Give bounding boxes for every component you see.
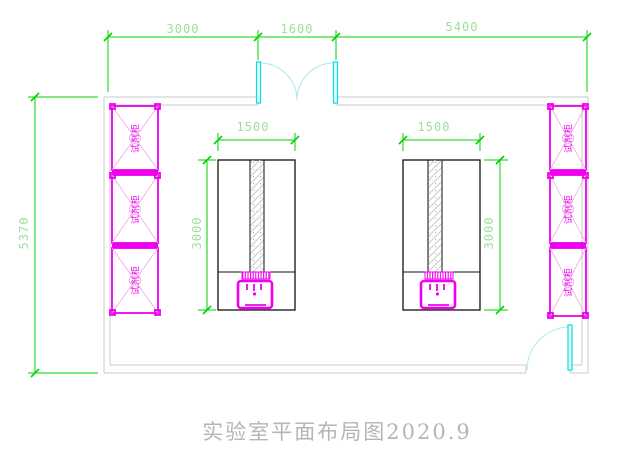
- lab-bench-right: [403, 160, 480, 310]
- cabinet-label: 试剂柜: [562, 194, 575, 224]
- bench-hatch-strip: [428, 160, 442, 272]
- cabinet-label: 试剂柜: [129, 123, 142, 153]
- bench-hatch-strip: [250, 160, 264, 272]
- sink-fixture: [238, 272, 272, 308]
- dim-bench-right-width-label: 1500: [418, 120, 451, 134]
- sink-fixture: [421, 272, 455, 308]
- lab-bench-left: [218, 160, 295, 310]
- dim-bench-right-depth-label: 3000: [482, 217, 496, 250]
- cabinet-label: 试剂柜: [129, 265, 142, 295]
- single-door-bottom: [527, 325, 572, 370]
- door-swing-arc: [527, 327, 568, 370]
- dim-left-overall-label: 5370: [17, 217, 31, 250]
- dim-bench-left-depth-label: 3000: [190, 217, 204, 250]
- dim-top-left-label: 3000: [167, 22, 200, 36]
- door-swing-arc: [297, 63, 334, 100]
- floor-plan-canvas: 3000 1600 5400 5370 1500 3000 1500 3000 …: [0, 0, 619, 469]
- room-walls: [104, 97, 588, 373]
- cabinet-label: 试剂柜: [562, 267, 575, 297]
- door-leaf: [334, 62, 338, 103]
- floor-plan-linework: [0, 0, 619, 469]
- dim-bench-left-width-label: 1500: [237, 120, 270, 134]
- drawing-title: 实验室平面布局图2020.9: [202, 416, 471, 446]
- dim-top-middle-label: 1600: [281, 22, 314, 36]
- dim-top-right-label: 5400: [446, 20, 479, 34]
- door-swing-arc: [260, 63, 297, 100]
- double-door-top: [257, 62, 338, 103]
- cabinet-label: 试剂柜: [129, 194, 142, 224]
- cabinet-label: 试剂柜: [562, 123, 575, 153]
- door-leaf: [257, 62, 261, 103]
- door-leaf: [568, 325, 572, 370]
